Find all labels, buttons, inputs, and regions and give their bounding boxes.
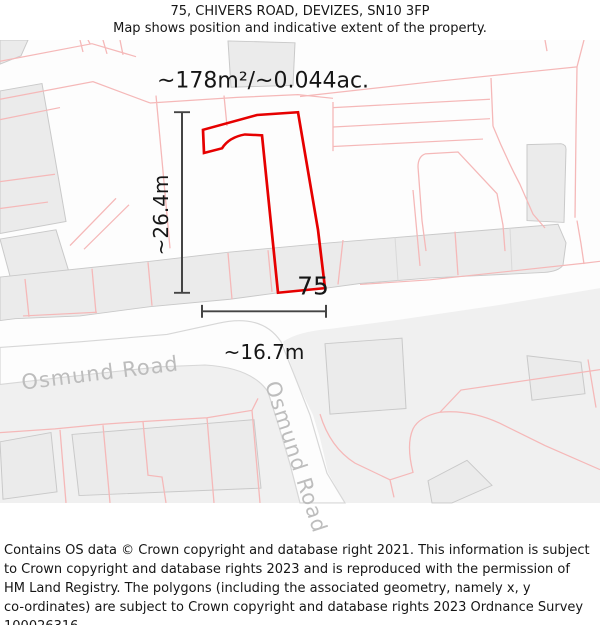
copyright-line: Contains OS data © Crown copyright and d… — [4, 541, 598, 560]
copyright-line: HM Land Registry. The polygons (includin… — [4, 579, 598, 598]
building-bottom-left-small — [0, 433, 57, 500]
building-mid-large — [325, 338, 406, 414]
copyright-line: co-ordinates) are subject to Crown copyr… — [4, 598, 598, 617]
copyright-line: 100026316. — [4, 617, 598, 625]
building-top-right — [527, 144, 566, 223]
copyright-line: to Crown copyright and database rights 2… — [4, 560, 598, 579]
width-measurement-label: ~16.7m — [224, 340, 305, 364]
height-measurement-label: ~26.4m — [149, 175, 173, 256]
property-map-screenshot: 75, CHIVERS ROAD, DEVIZES, SN10 3FP Map … — [0, 0, 600, 625]
page-title: 75, CHIVERS ROAD, DEVIZES, SN10 3FP — [0, 4, 600, 20]
map-subtitle: Map shows position and indicative extent… — [0, 21, 600, 37]
property-number-label: 75 — [297, 272, 329, 301]
copyright-text: Contains OS data © Crown copyright and d… — [4, 541, 598, 625]
building-right-mid — [527, 356, 585, 400]
area-label: ~178m²/~0.044ac. — [157, 69, 369, 94]
